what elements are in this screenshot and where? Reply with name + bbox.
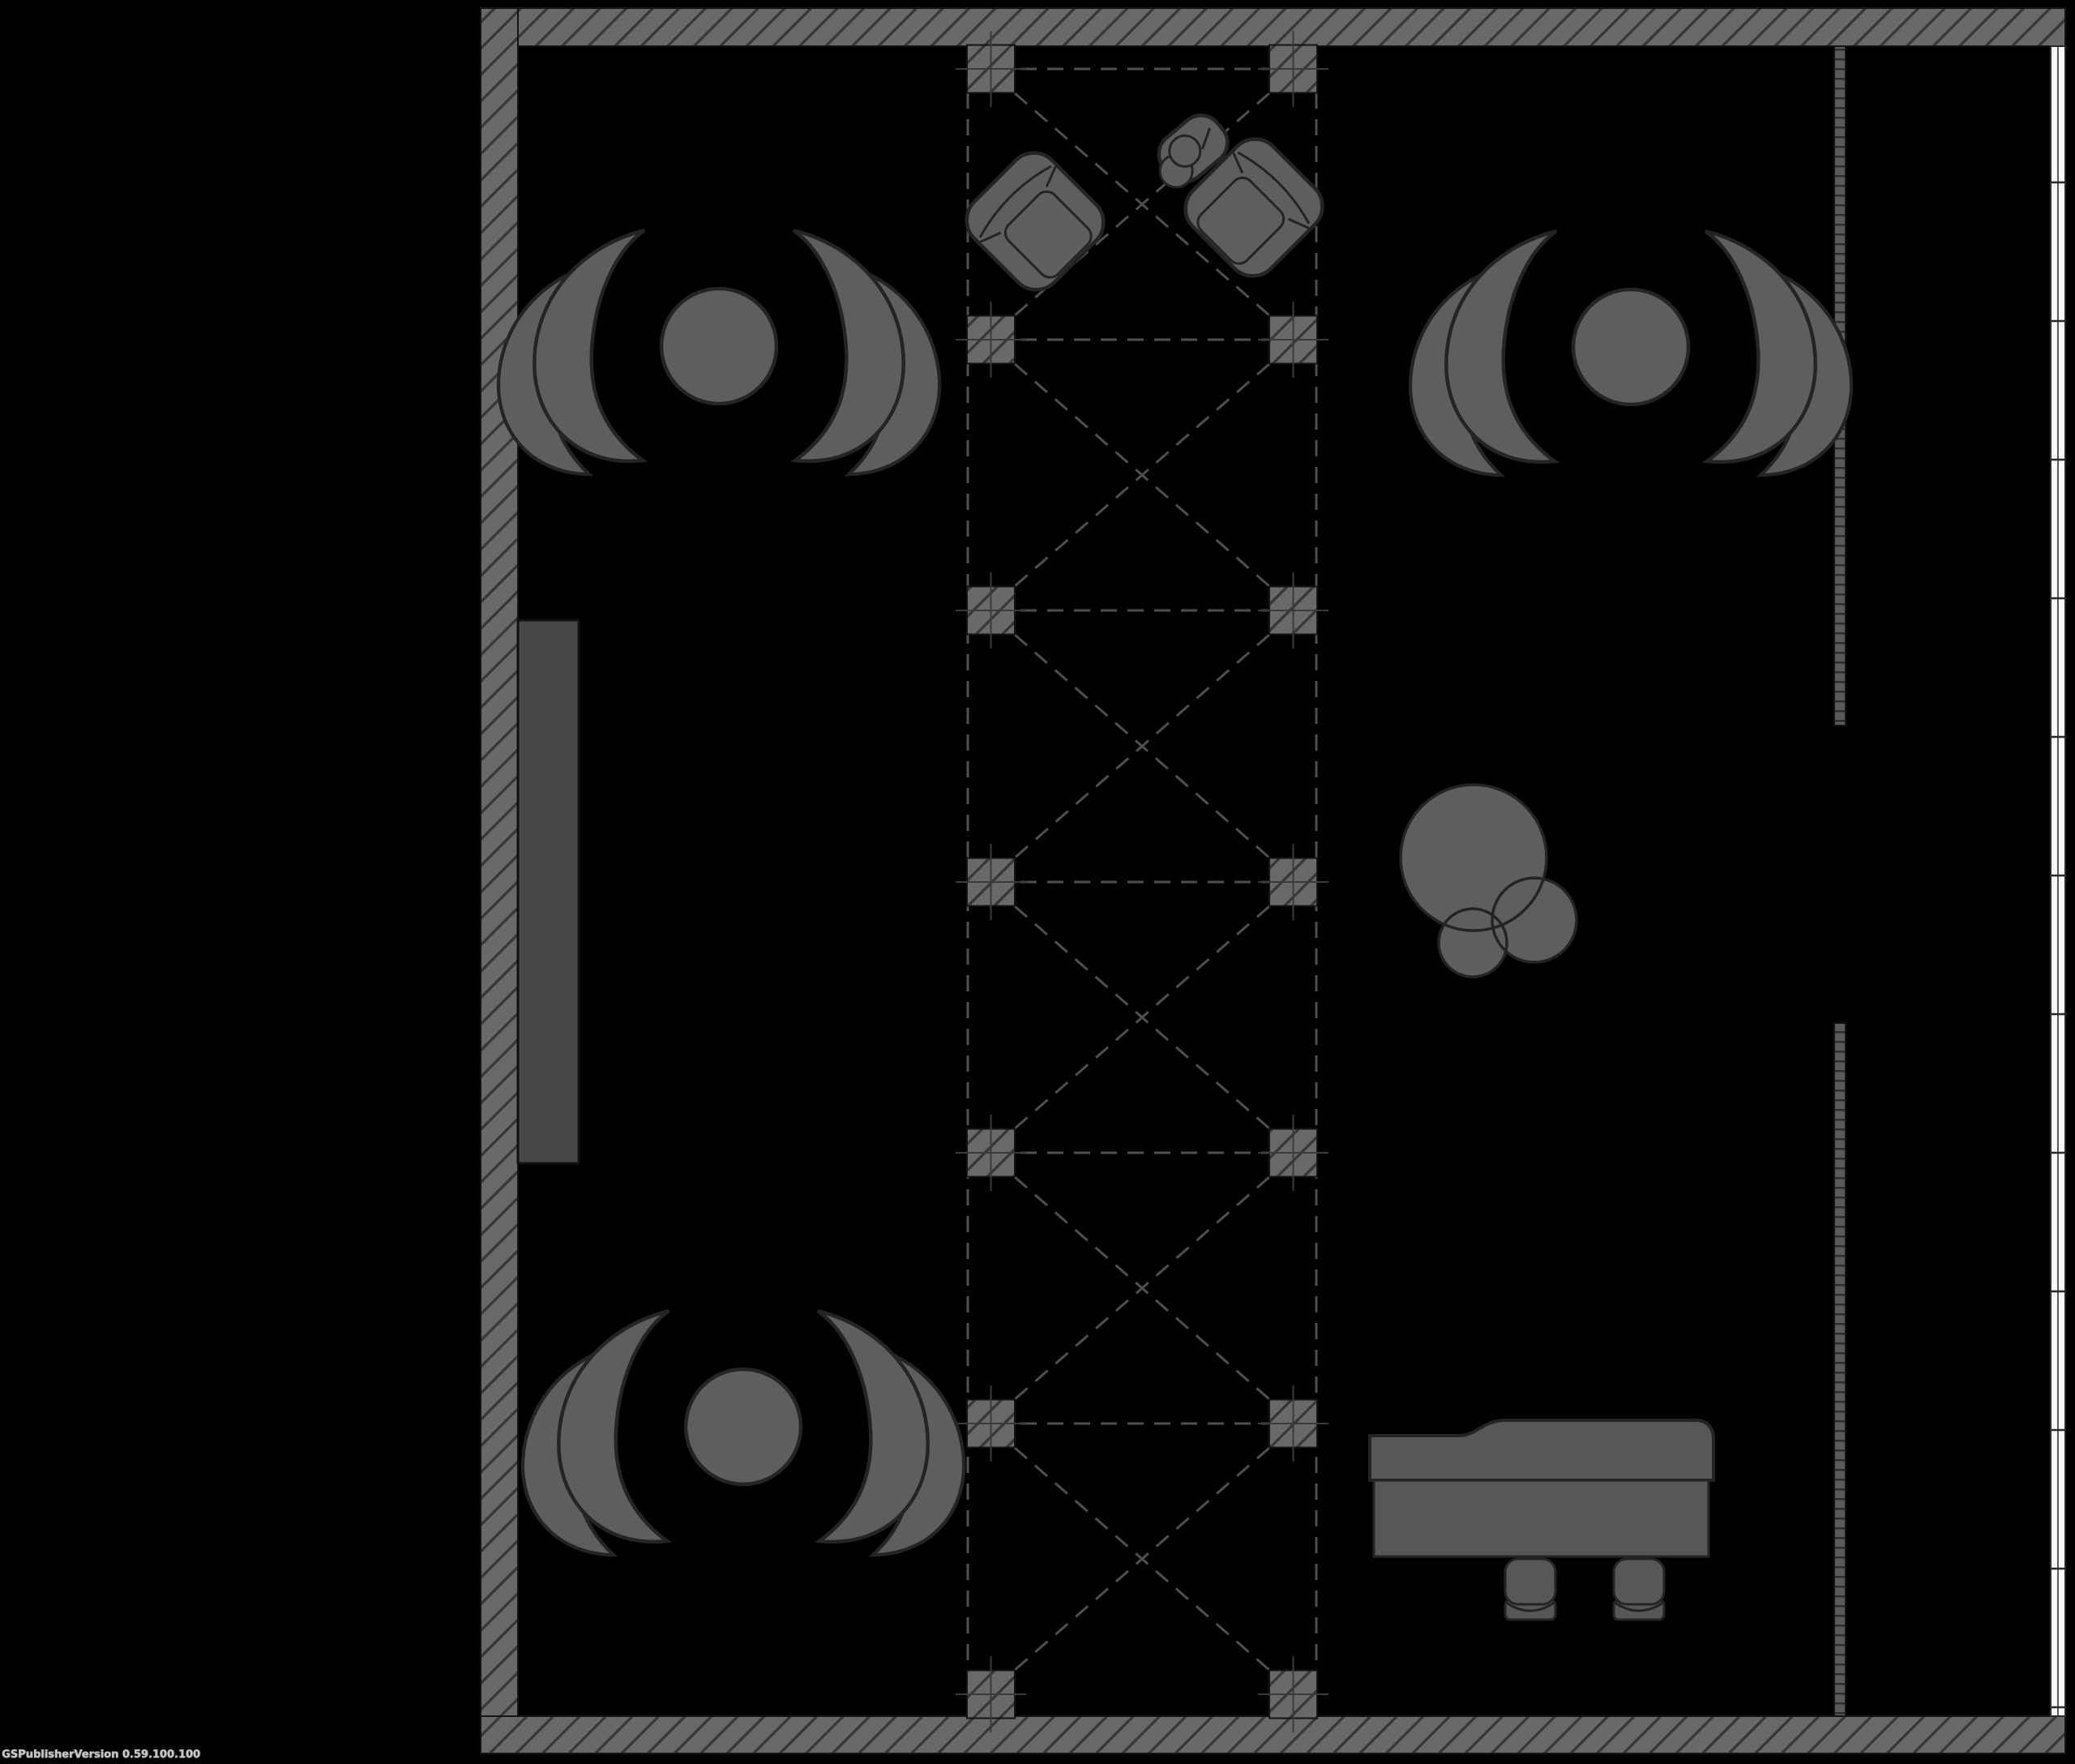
version-watermark: GSPublisherVersion 0.59.100.100 xyxy=(2,1749,200,1761)
floor-plan-page: GSPublisherVersion 0.59.100.100 xyxy=(0,0,2075,1764)
piano-stool xyxy=(1614,1559,1664,1620)
round-table xyxy=(686,1369,801,1484)
wall-left xyxy=(481,8,518,1753)
piano-stool xyxy=(1505,1559,1555,1620)
floor-plan-drawing xyxy=(0,0,2075,1764)
wall-bottom xyxy=(481,1716,2065,1753)
round-table xyxy=(661,289,777,404)
wall-top xyxy=(481,8,2065,46)
sideboard xyxy=(518,620,579,1163)
partition-wall xyxy=(1834,1023,1846,1716)
round-table xyxy=(1573,289,1688,405)
window-band xyxy=(2050,46,2066,1716)
